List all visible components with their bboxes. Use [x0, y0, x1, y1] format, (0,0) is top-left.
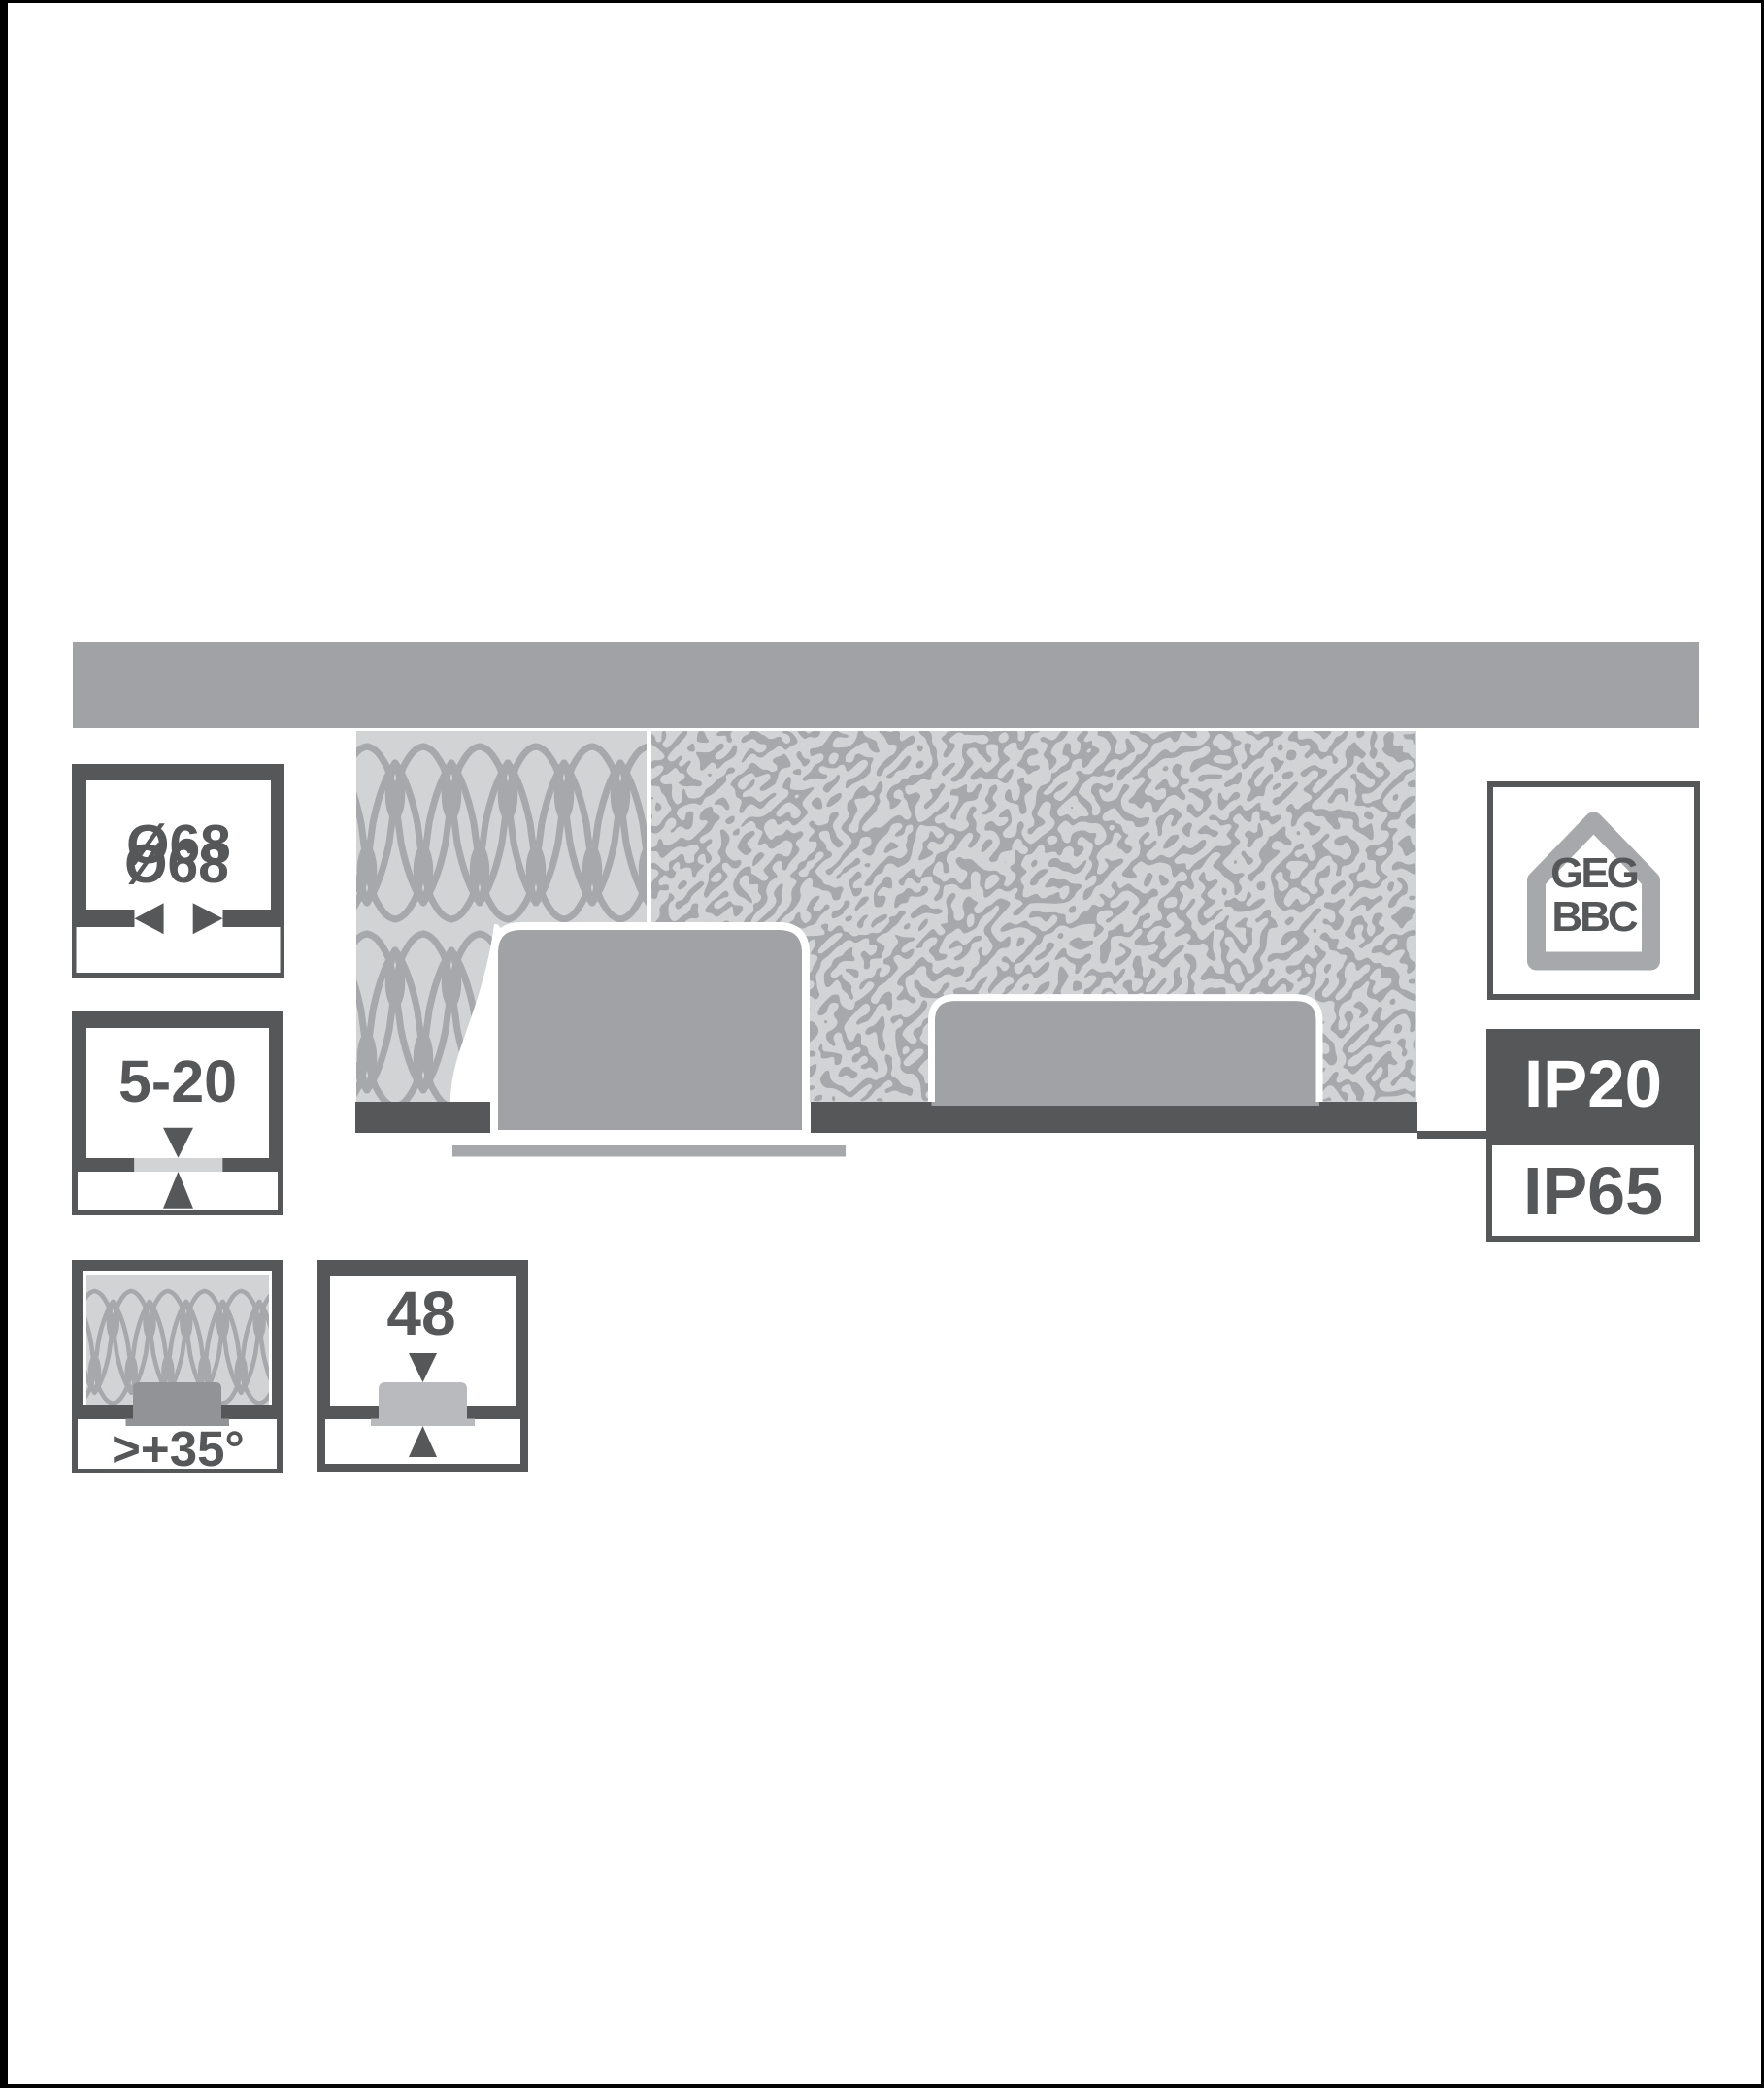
svg-text:Ø68: Ø68: [124, 833, 229, 895]
svg-text:IP65: IP65: [1523, 1153, 1663, 1229]
svg-text:48: 48: [386, 1278, 455, 1348]
svg-text:GEG: GEG: [1550, 849, 1638, 897]
svg-text:>+35°: >+35°: [112, 1421, 245, 1476]
svg-text:BBC: BBC: [1551, 893, 1638, 941]
svg-text:IP20: IP20: [1524, 1046, 1662, 1121]
svg-text:5-20: 5-20: [118, 1048, 237, 1114]
